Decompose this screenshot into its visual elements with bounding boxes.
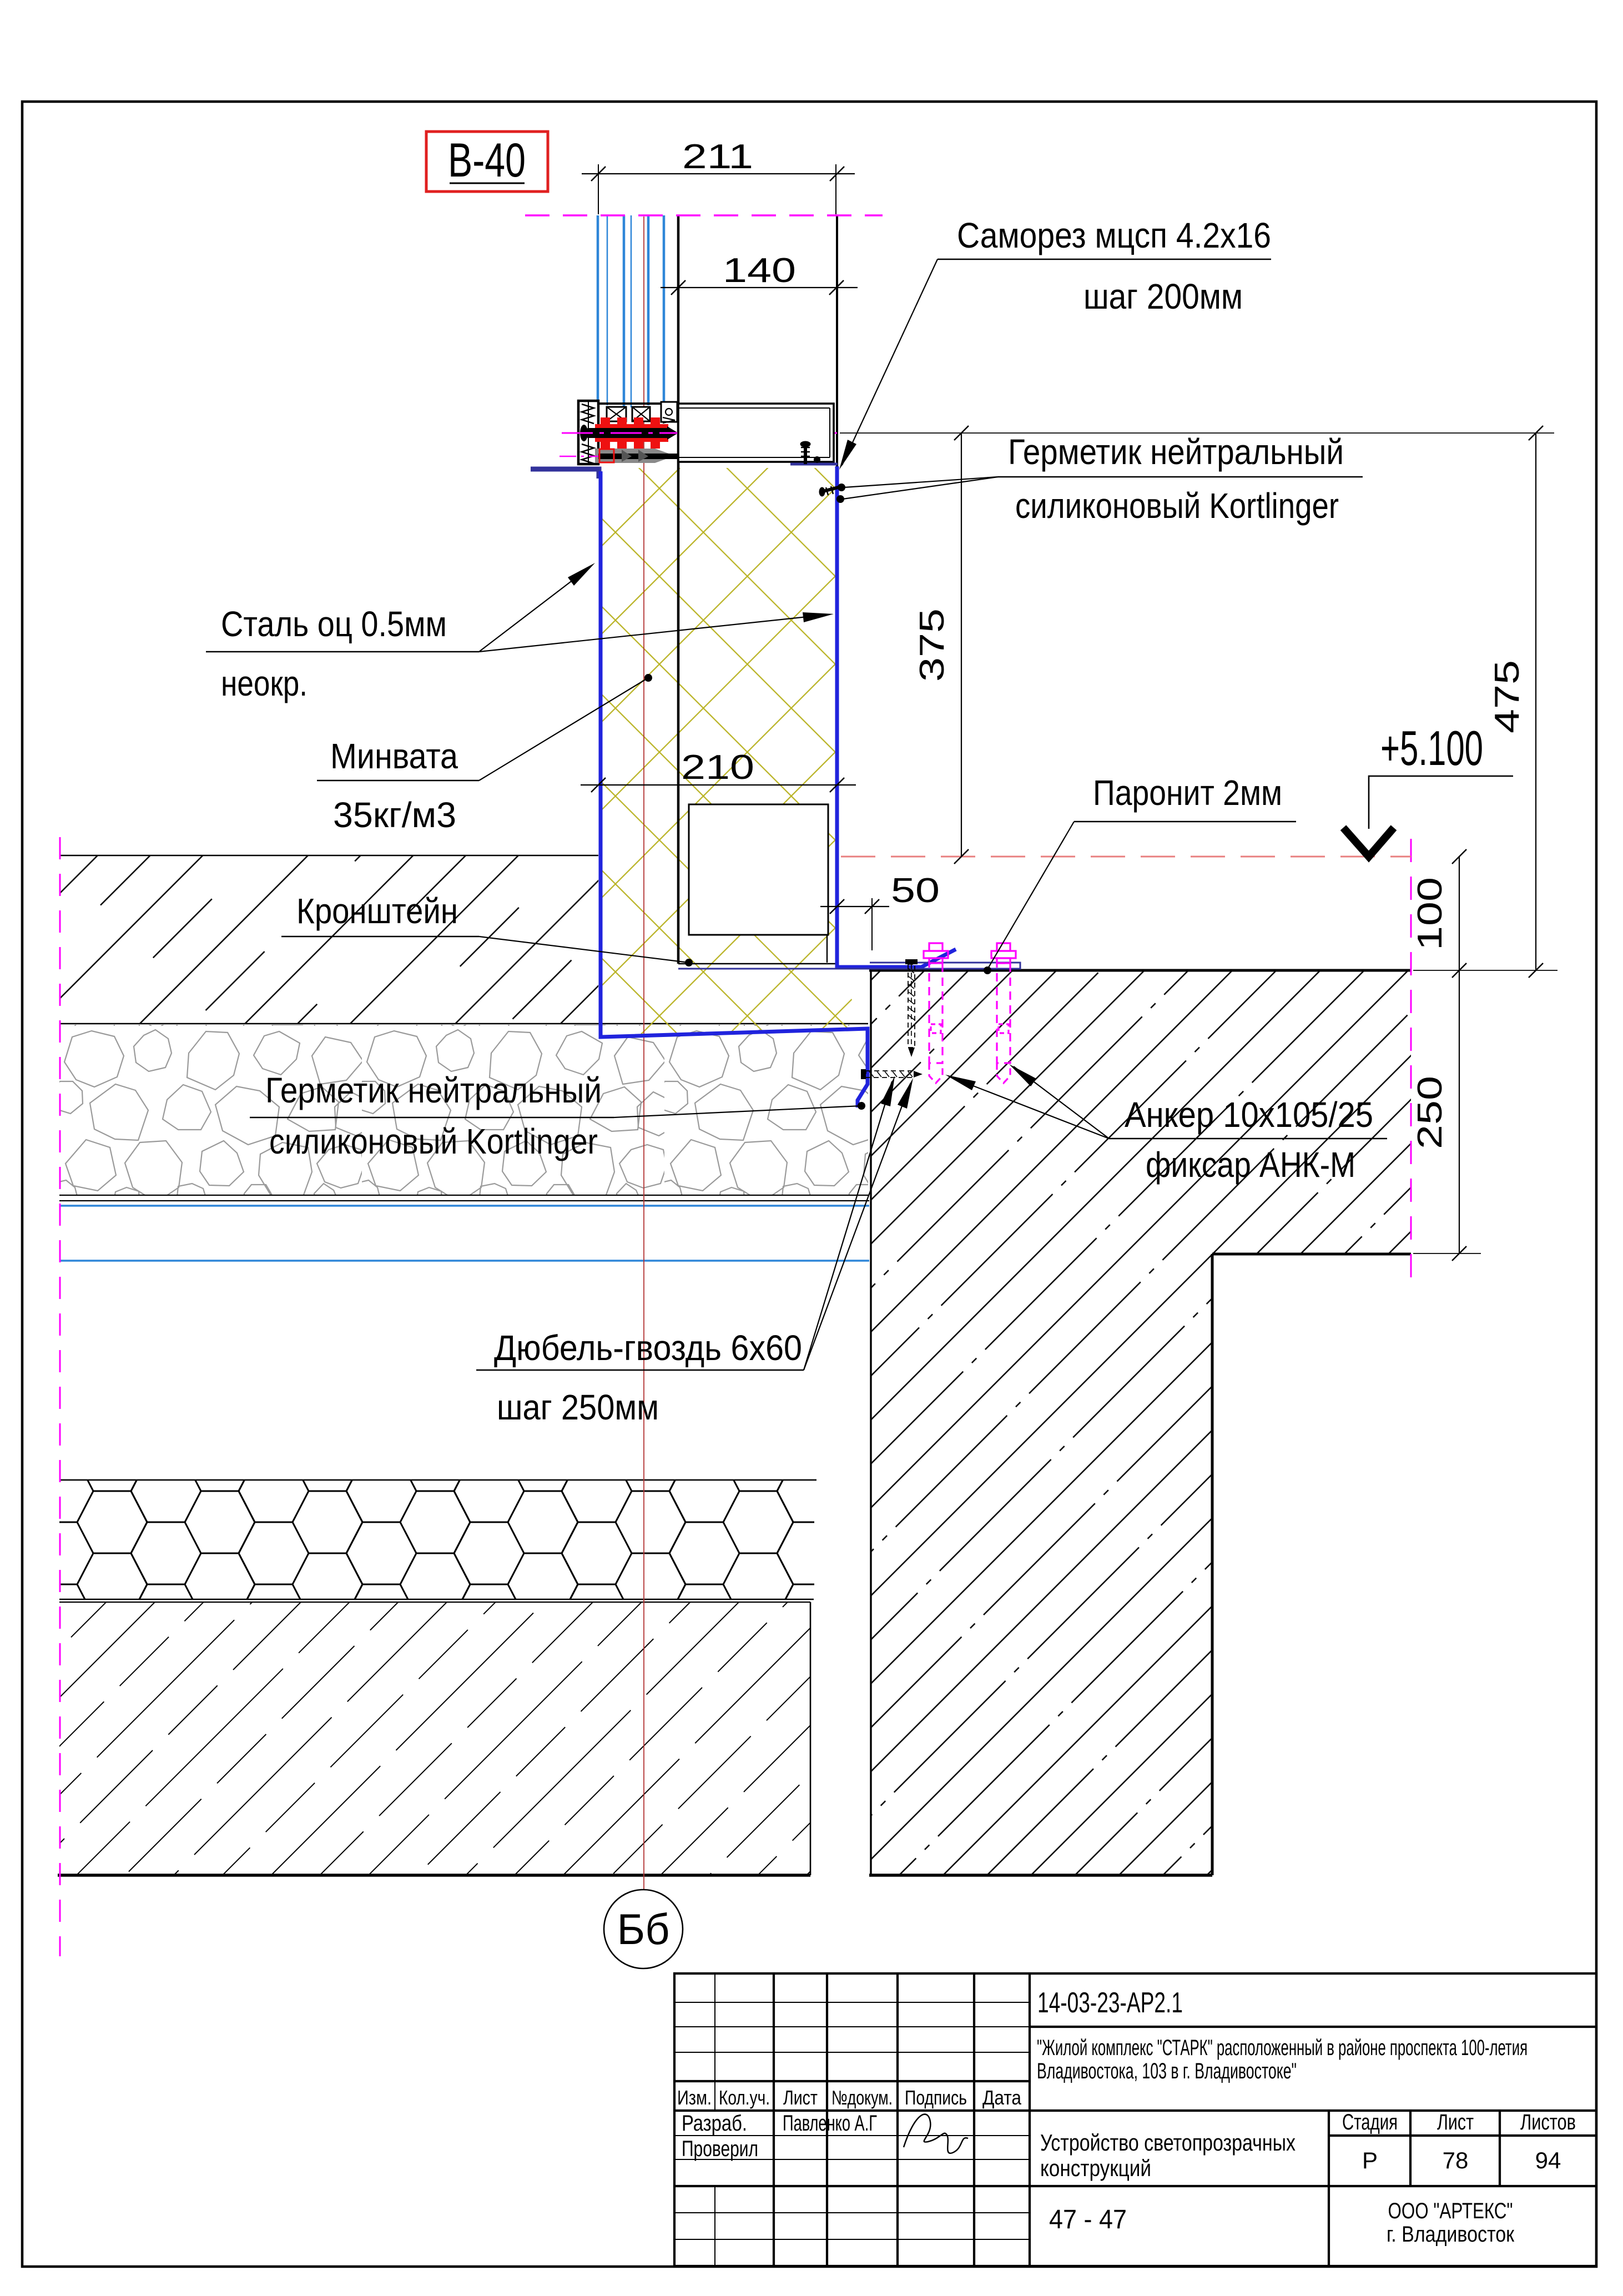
svg-text:210: 210 xyxy=(681,748,754,787)
svg-text:Дата: Дата xyxy=(982,2086,1022,2109)
svg-text:Лист: Лист xyxy=(783,2086,818,2109)
svg-text:475: 475 xyxy=(1488,660,1526,733)
svg-text:Кол.уч.: Кол.уч. xyxy=(719,2086,770,2109)
svg-text:211: 211 xyxy=(682,138,753,176)
svg-text:50: 50 xyxy=(891,872,940,910)
svg-text:Кронштейн: Кронштейн xyxy=(296,891,458,931)
svg-text:Герметик нейтральный: Герметик нейтральный xyxy=(265,1070,602,1110)
svg-text:Дюбель-гвоздь 6х60: Дюбель-гвоздь 6х60 xyxy=(494,1328,802,1368)
svg-text:Лист: Лист xyxy=(1437,2110,1474,2134)
svg-text:Бб: Бб xyxy=(617,1905,670,1953)
svg-text:шаг 250мм: шаг 250мм xyxy=(497,1387,659,1427)
svg-text:375: 375 xyxy=(913,608,951,682)
svg-text:+5.100: +5.100 xyxy=(1380,721,1483,776)
svg-text:Владивостока, 103 в г. Владиво: Владивостока, 103 в г. Владивостоке" xyxy=(1037,2059,1297,2083)
svg-text:47 - 47: 47 - 47 xyxy=(1049,2205,1127,2234)
svg-text:Разраб.: Разраб. xyxy=(682,2111,747,2136)
svg-text:силиконовый Kortlinger: силиконовый Kortlinger xyxy=(1015,486,1339,526)
svg-text:35кг/м3: 35кг/м3 xyxy=(333,795,456,835)
svg-text:14-03-23-АР2.1: 14-03-23-АР2.1 xyxy=(1037,1987,1183,2019)
svg-text:фиксар АНК-М: фиксар АНК-М xyxy=(1146,1145,1355,1185)
svg-text:В-40: В-40 xyxy=(448,134,526,187)
svg-text:Паронит 2мм: Паронит 2мм xyxy=(1093,773,1282,813)
svg-text:силиконовый Kortlinger: силиконовый Kortlinger xyxy=(269,1121,598,1161)
svg-text:неокр.: неокр. xyxy=(221,663,308,703)
svg-text:Подпись: Подпись xyxy=(905,2086,967,2109)
svg-text:г. Владивосток: г. Владивосток xyxy=(1387,2222,1514,2247)
svg-text:"Жилой комплекс "СТАРК" распол: "Жилой комплекс "СТАРК" расположенный в … xyxy=(1037,2036,1528,2060)
svg-text:Герметик нейтральный: Герметик нейтральный xyxy=(1008,432,1344,472)
svg-text:Минвата: Минвата xyxy=(330,736,458,776)
svg-text:Проверил: Проверил xyxy=(682,2137,758,2161)
svg-text:Стадия: Стадия xyxy=(1342,2110,1398,2134)
svg-text:78: 78 xyxy=(1443,2147,1469,2173)
svg-text:94: 94 xyxy=(1535,2147,1561,2173)
svg-text:Р: Р xyxy=(1362,2147,1378,2173)
svg-text:Павленко А.Г: Павленко А.Г xyxy=(783,2111,877,2136)
svg-text:Изм.: Изм. xyxy=(677,2086,712,2109)
svg-text:Устройство светопрозрачных: Устройство светопрозрачных xyxy=(1040,2129,1296,2156)
svg-text:конструкций: конструкций xyxy=(1040,2155,1151,2181)
svg-text:140: 140 xyxy=(723,251,796,290)
svg-text:ООО "АРТЕКС": ООО "АРТЕКС" xyxy=(1388,2199,1513,2223)
svg-text:Саморез мцсп 4.2х16: Саморез мцсп 4.2х16 xyxy=(957,215,1271,255)
svg-text:Сталь оц 0.5мм: Сталь оц 0.5мм xyxy=(221,604,447,644)
svg-text:250: 250 xyxy=(1411,1076,1449,1149)
svg-text:Анкер 10х105/25: Анкер 10х105/25 xyxy=(1125,1095,1373,1135)
svg-text:Листов: Листов xyxy=(1520,2110,1576,2134)
svg-text:№докум.: №докум. xyxy=(831,2086,893,2109)
svg-text:100: 100 xyxy=(1411,877,1449,950)
svg-text:шаг 200мм: шаг 200мм xyxy=(1083,276,1243,316)
